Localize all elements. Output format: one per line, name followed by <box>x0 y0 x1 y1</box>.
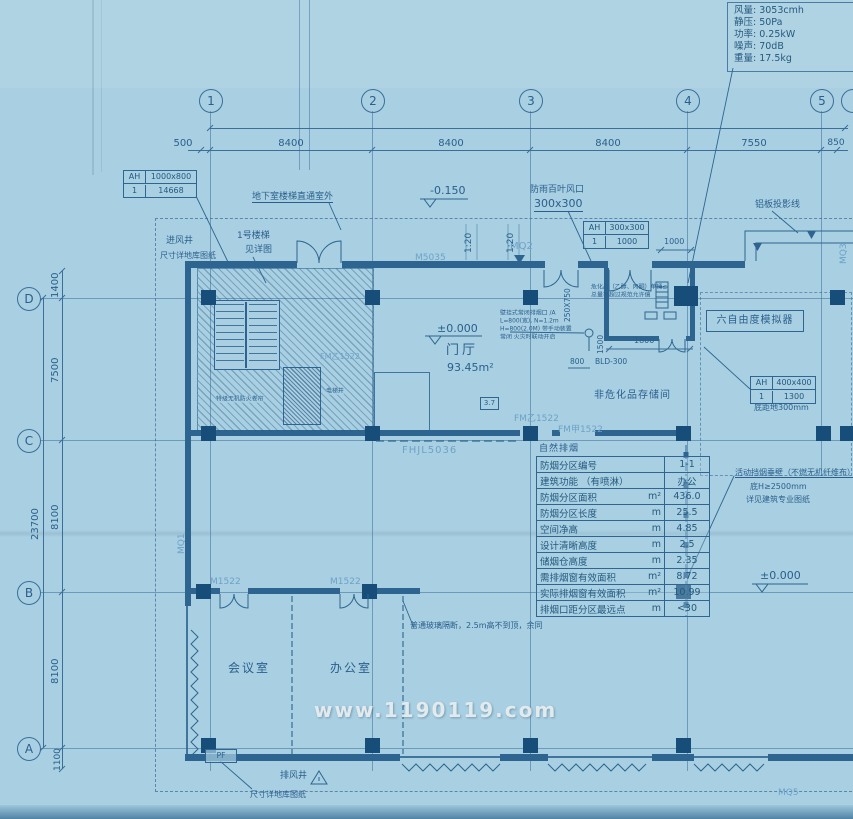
ah3-val: 1300 <box>773 391 815 403</box>
dim-8100-b: 8100 <box>50 659 62 684</box>
table-row: 防烟分区长度m25.5 <box>537 504 709 520</box>
ah1-size: 1000x800 <box>146 171 196 184</box>
slope-label-1: 1:20 <box>464 233 474 253</box>
column <box>365 738 380 753</box>
ah-box-400x400: AH400x400 11300 <box>750 376 816 404</box>
axis-C-label: C <box>25 434 33 448</box>
axis-bubble-5: 5 <box>810 89 834 113</box>
smoke-curtain-note-2: 底H≥2500mm <box>750 482 807 491</box>
wall-bottom-4 <box>768 754 853 761</box>
storage-note-line1: 危化品（乙醇、丙酮）单桶≤ <box>591 284 667 291</box>
row-label: 需排烟窗有效面积 <box>540 570 616 584</box>
wall-bottom-2 <box>500 754 548 761</box>
wall-top-4 <box>652 261 745 268</box>
ah-box-300x300: AH300x300 11000 <box>583 221 649 249</box>
door-fm-stair-label: FM乙1522 <box>320 352 360 361</box>
row-label: 防烟分区编号 <box>540 458 597 472</box>
mq3-label: MQ3 <box>839 243 849 264</box>
ah1-num: 1 <box>124 185 146 197</box>
grid-line-3 <box>530 111 531 771</box>
vent-note-line3: H=800(2.0M) 带手动装置 <box>500 326 572 333</box>
exhaust-shaft-note: 尺寸详地库图纸 <box>250 790 306 799</box>
column <box>201 290 216 305</box>
ah2-tag: AH <box>584 222 606 235</box>
row-label: 防烟分区长度 <box>540 506 597 520</box>
axis-bubble-partial <box>841 89 853 113</box>
stair-treads-left <box>216 304 244 366</box>
small-room-outline <box>374 372 430 434</box>
pf-tag-box: PF <box>205 749 237 763</box>
door-fm-yi-label: FM乙1522 <box>514 414 559 424</box>
axis-D-label: D <box>24 292 33 306</box>
stair1-note: 见详图 <box>245 245 272 255</box>
fan-spec-box: 风量: 3053cmh 静压: 50Pa 功率: 0.25kW 噪声: 70dB… <box>727 2 853 72</box>
dim-line-left-total <box>43 298 44 748</box>
row-unit: m² <box>648 571 661 582</box>
table-title: 自然排烟 <box>539 444 579 454</box>
dim-1800: 1800 <box>634 336 654 345</box>
dim-line-top <box>188 150 848 151</box>
rain-louver-label: 防雨百叶风口 <box>530 185 584 195</box>
row-label: 储烟仓高度 <box>540 554 588 568</box>
table-row: 排烟口距分区最远点m<30 <box>537 600 709 616</box>
spec-line-weight: 重量: 17.5kg <box>734 53 852 65</box>
ah1-val: 14668 <box>146 185 196 197</box>
wall-left-thin <box>186 606 188 758</box>
column <box>365 290 380 305</box>
dim-8400-c: 8400 <box>588 138 628 150</box>
column <box>201 426 216 441</box>
lobby-area: 93.45m² <box>447 362 494 375</box>
axis-1-label: 1 <box>207 94 215 108</box>
slope-label-2: 1:20 <box>506 233 516 253</box>
column <box>830 290 845 305</box>
paper-crease-vertical-2 <box>101 0 102 172</box>
vent-note-line1: 壁挂式常闭排烟口 /A <box>500 310 556 317</box>
ah2-size: 300x300 <box>606 222 648 235</box>
axis-bubble-D: D <box>17 287 41 311</box>
row-value: 1-1 <box>664 457 709 472</box>
dim-1400: 1400 <box>50 273 62 298</box>
column <box>676 738 691 753</box>
table-row: 实际排烟窗有效面积m²10.99 <box>537 584 709 600</box>
ah2-num: 1 <box>584 236 606 248</box>
dim-800: 800 <box>570 358 584 367</box>
column <box>365 426 380 441</box>
exhaust-shaft-label: 排风井 <box>280 771 307 781</box>
grid-line-4 <box>687 111 688 771</box>
vent-note-line2: L=800(宽), N=1.2m <box>500 318 559 325</box>
office-room-label: 办公室 <box>330 662 372 676</box>
dim-850: 850 <box>822 138 850 148</box>
table-row: 防烟分区面积m²436.0 <box>537 488 709 504</box>
smoke-curtain-note-3: 详见建筑专业图纸 <box>746 495 810 504</box>
axis-bubble-2: 2 <box>361 89 385 113</box>
ah2-val: 1000 <box>606 236 648 248</box>
spec-line-pressure: 静压: 50Pa <box>734 17 852 29</box>
axis-bubble-1: 1 <box>199 89 223 113</box>
level-zero-lobby: ±0.000 <box>437 323 478 336</box>
door-m1522-a-label: M1522 <box>210 577 241 587</box>
simulator-label: 六自由度模拟器 <box>717 315 794 327</box>
vent-note-line4: 常闭 火灾时联动开启 <box>500 334 555 341</box>
spec-line-noise: 噪声: 70dB <box>734 41 852 53</box>
door-fm-jia-label: FM甲1522 <box>558 425 603 435</box>
dim-7550: 7550 <box>734 138 774 150</box>
mq1-label: MQ1 <box>177 533 187 554</box>
column <box>816 426 831 441</box>
fire-shutter-fhjl-label: FHJL5036 <box>402 445 457 457</box>
level-minus-0150: -0.150 <box>430 185 465 198</box>
ah3-tag: AH <box>751 377 773 390</box>
smoke-zone-table: 防烟分区编号1-1 建筑功能 （有喷淋）办公 防烟分区面积m²436.0 防烟分… <box>536 456 710 617</box>
table-row: 空间净高m4.85 <box>537 520 709 536</box>
fan-unit <box>674 286 698 306</box>
photo-bottom-edge <box>0 805 853 819</box>
row-unit: m <box>652 507 661 518</box>
storage-wall-bottom-2 <box>686 336 695 341</box>
ref-37: 3.7 <box>484 399 495 407</box>
grid-line-2 <box>372 111 373 771</box>
door-m1522-b-label: M1522 <box>330 577 361 587</box>
dim-23700: 23700 <box>30 508 42 540</box>
grid-line-5 <box>821 111 822 471</box>
row-value: 2.5 <box>664 537 709 552</box>
row-value: 10.99 <box>664 585 709 600</box>
axis-4-label: 4 <box>684 94 692 108</box>
axis-bubble-4: 4 <box>676 89 700 113</box>
row-label: 排烟口距分区最远点 <box>540 602 626 616</box>
row-value: 436.0 <box>664 489 709 504</box>
row-value: <30 <box>664 601 709 616</box>
dim-line-left <box>62 271 63 769</box>
ref-37-box: 3.7 <box>480 397 499 410</box>
grid-line-B <box>40 592 853 593</box>
column <box>523 426 538 441</box>
row-value: 8.72 <box>664 569 709 584</box>
spec-line-power: 功率: 0.25kW <box>734 29 852 41</box>
ah1-tag: AH <box>124 171 146 184</box>
axis-bubble-A: A <box>17 737 41 761</box>
axis-2-label: 2 <box>369 94 377 108</box>
air-inlet-note: 尺寸详地库图纸 <box>160 251 216 260</box>
row-unit: m <box>652 523 661 534</box>
dim-line-top-overall <box>210 128 848 129</box>
elevator-shaft <box>283 367 321 425</box>
paper-crease-vertical <box>92 0 94 175</box>
wall-B-2 <box>248 588 340 594</box>
stair-center-rail <box>245 302 247 368</box>
row-value: 办公 <box>664 473 709 488</box>
axis-bubble-B: B <box>17 581 41 605</box>
row-unit: m² <box>648 491 661 502</box>
level-zero-right: ±0.000 <box>760 570 801 583</box>
dim-8400-b: 8400 <box>431 138 471 150</box>
row-label: 建筑功能 （有喷淋） <box>540 474 629 488</box>
dim-7500: 7500 <box>50 358 62 383</box>
table-row: 储烟仓高度m2.35 <box>537 552 709 568</box>
row-unit: m <box>652 555 661 566</box>
pf-label: PF <box>217 752 226 761</box>
dim-1100: 1100 <box>53 748 63 771</box>
paper-highlight-top <box>0 0 853 88</box>
watermark: www.1190119.com <box>314 698 557 722</box>
storage-wall-left <box>604 268 609 340</box>
wall-top-3 <box>578 261 608 268</box>
row-value: 4.85 <box>664 521 709 536</box>
axis-3-label: 3 <box>527 94 535 108</box>
glass-partition-note: 普通玻璃隔断，2.5m高不到顶，余同 <box>410 621 543 630</box>
ah3-size: 400x400 <box>773 377 815 390</box>
dim-bld300: BLD-300 <box>595 358 627 367</box>
row-unit: m² <box>648 587 661 598</box>
rolling-shutter-label: 特级无机防火卷帘 <box>216 396 264 403</box>
ah3-num: 1 <box>751 391 773 403</box>
smoke-curtain-note-1: 活动挡烟垂壁（不燃无机纤维布） <box>735 468 853 478</box>
row-unit: m <box>652 539 661 550</box>
dim-500: 500 <box>170 138 196 150</box>
column <box>362 584 377 599</box>
row-value: 25.5 <box>664 505 709 520</box>
elevator-label: 电梯井 <box>326 388 344 395</box>
underground-stair-note: 地下室楼梯直通室外 <box>252 192 333 203</box>
row-value: 2.35 <box>664 553 709 568</box>
meeting-room-label: 会议室 <box>228 662 270 676</box>
dim-8400-a: 8400 <box>271 138 311 150</box>
grid-line-C <box>40 440 853 441</box>
spec-line-airflow: 风量: 3053cmh <box>734 5 852 17</box>
column <box>523 738 538 753</box>
table-row: 防烟分区编号1-1 <box>537 457 709 472</box>
ah3-note: 底距地300mm <box>754 403 809 412</box>
rain-louver-size: 300x300 <box>534 198 583 212</box>
row-label: 设计清晰高度 <box>540 538 597 552</box>
table-row: 设计清晰高度m2.5 <box>537 536 709 552</box>
axis-bubble-3: 3 <box>519 89 543 113</box>
row-unit: m <box>652 603 661 614</box>
table-row: 需排烟窗有效面积m²8.72 <box>537 568 709 584</box>
ah-box-1000x800: AH1000x800 114668 <box>123 170 197 198</box>
axis-A-label: A <box>25 742 33 756</box>
grid-line-D <box>40 298 853 299</box>
alum-projection-label: 铝板投影线 <box>755 200 800 210</box>
table-row: 建筑功能 （有喷淋）办公 <box>537 472 709 488</box>
blueprint-sheet: { "spec_box": {"lines": ["风量: 3053cmh", … <box>0 0 853 819</box>
row-label: 空间净高 <box>540 522 578 536</box>
dim-8100-a: 8100 <box>50 505 62 530</box>
dim-1500: 1500 <box>597 335 606 354</box>
grid-line-1 <box>210 111 211 771</box>
stair1-label: 1号楼梯 <box>237 231 270 241</box>
axis-bubble-C: C <box>17 429 41 453</box>
storage-note-line2: 总量不超过规范允许值 <box>591 292 651 299</box>
mq5-label: MQ5 <box>778 788 799 798</box>
dim-250x750: 250X750 <box>564 288 573 322</box>
wall-bottom-3 <box>652 754 694 761</box>
wall-top-1 <box>185 261 297 268</box>
door-m5035-label: M5035 <box>415 253 446 263</box>
stair-treads-right <box>249 304 277 366</box>
storage-room-label: 非危化品存储间 <box>594 390 671 402</box>
column <box>523 290 538 305</box>
air-inlet-label: 进风井 <box>166 236 193 246</box>
grid-line-A <box>40 748 853 749</box>
column <box>676 426 691 441</box>
column <box>196 584 211 599</box>
axis-5-label: 5 <box>818 94 826 108</box>
lobby-label: 门厅 <box>446 344 478 359</box>
simulator-box: 六自由度模拟器 <box>706 310 804 332</box>
dim-1000: 1000 <box>664 237 684 246</box>
column <box>840 426 853 441</box>
row-label: 实际排烟窗有效面积 <box>540 586 626 600</box>
axis-B-label: B <box>25 586 33 600</box>
row-label: 防烟分区面积 <box>540 490 597 504</box>
